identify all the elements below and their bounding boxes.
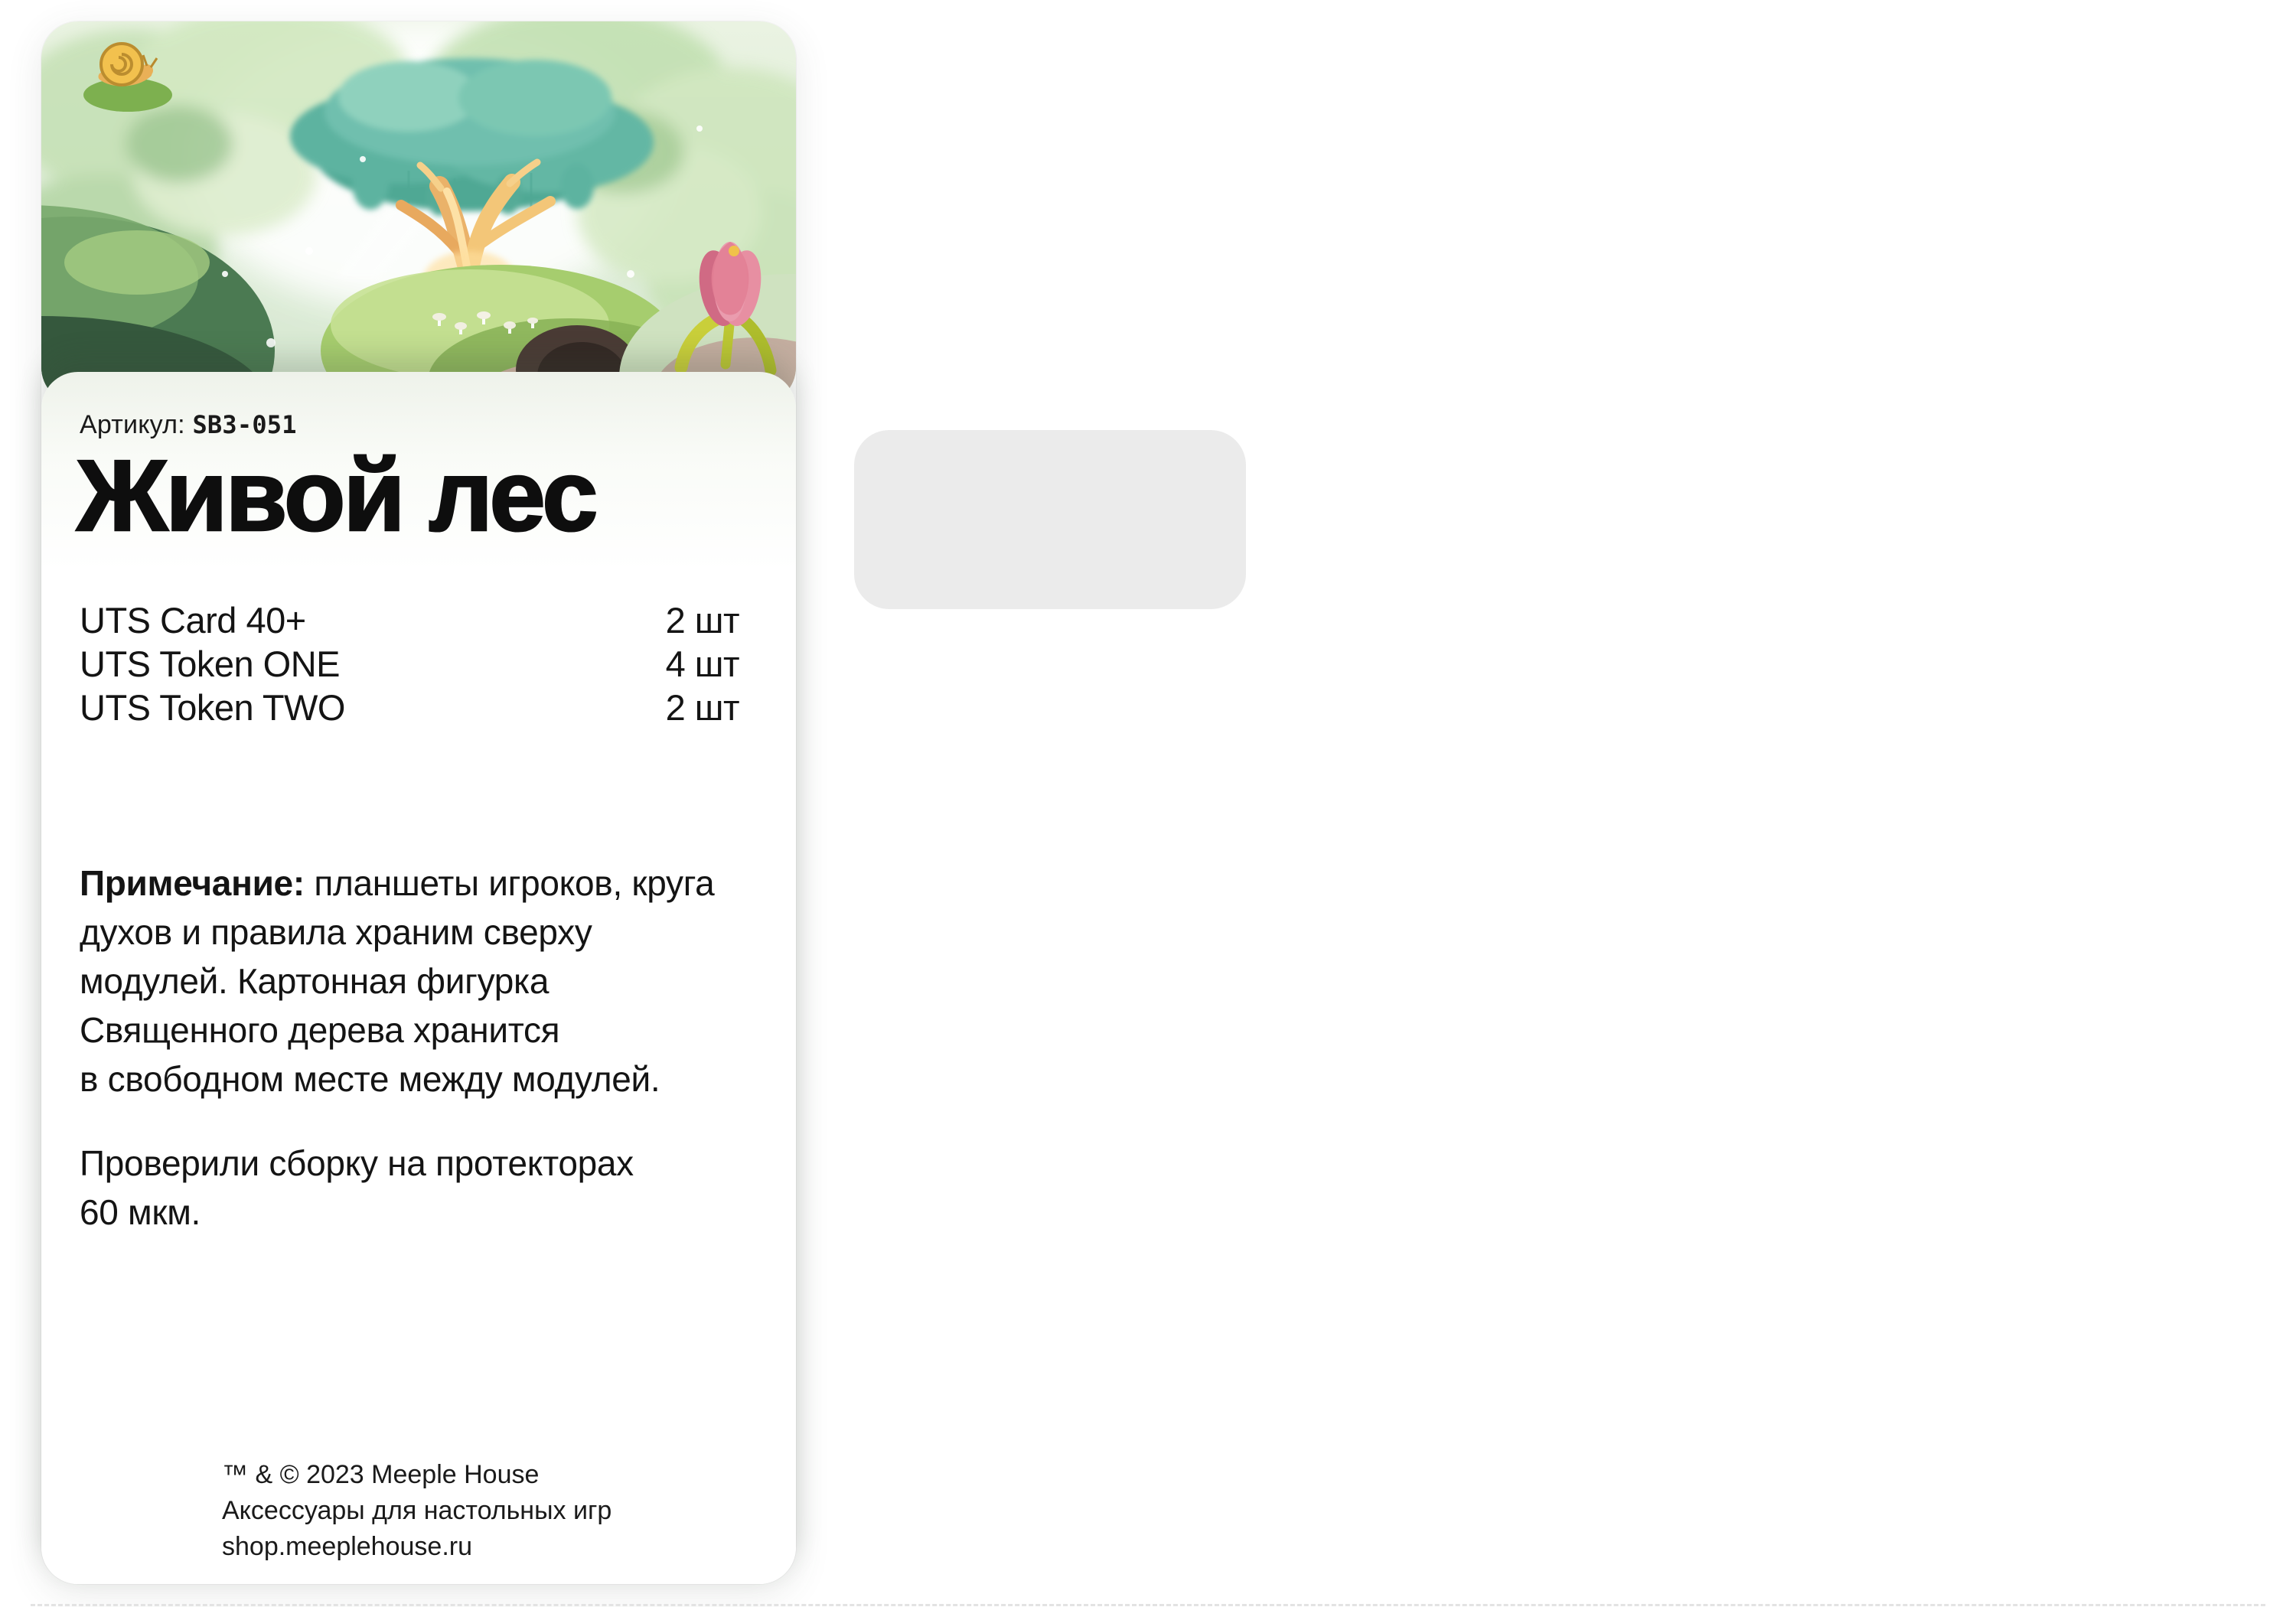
speech-bubble xyxy=(854,430,1246,609)
spec-sheet-page: Артикул: SB3-051 Живой лес UTS Card 40+2… xyxy=(0,0,2296,1607)
assembly-diagram xyxy=(0,0,2296,1607)
